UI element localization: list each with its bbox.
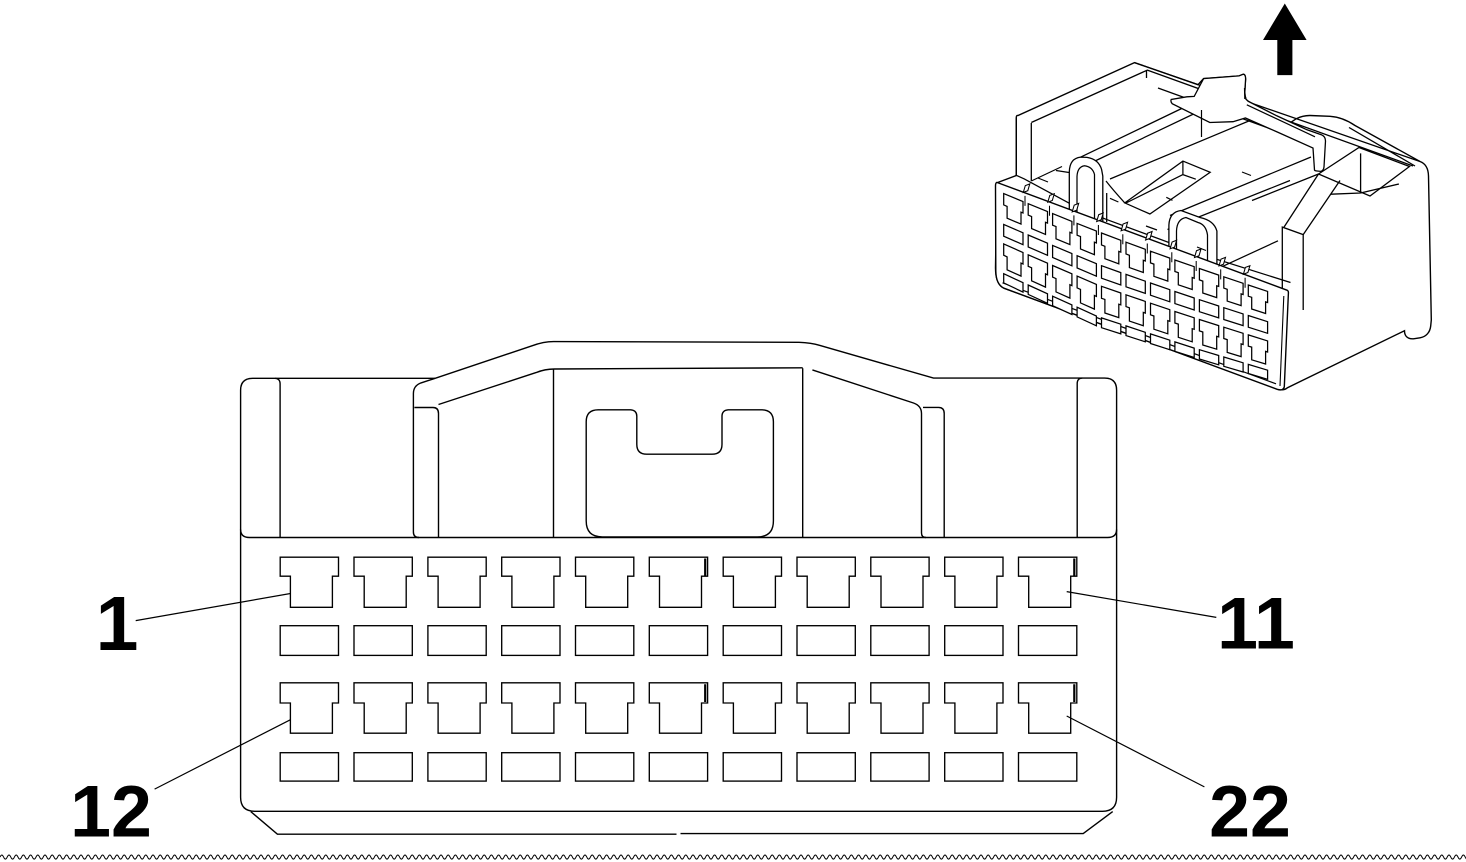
svg-text:22: 22 (1209, 770, 1291, 853)
svg-text:1: 1 (96, 581, 139, 667)
svg-text:11: 11 (1217, 582, 1295, 665)
svg-text:12: 12 (70, 770, 152, 853)
